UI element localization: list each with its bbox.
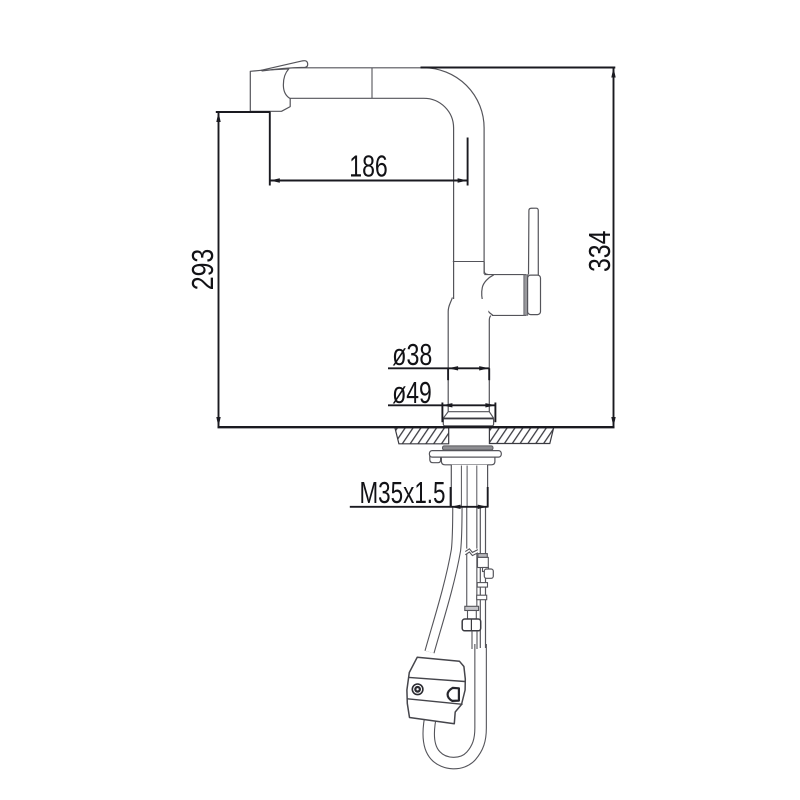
- svg-text:ø49: ø49: [392, 375, 432, 410]
- svg-text:334: 334: [582, 231, 617, 272]
- svg-text:ø38: ø38: [392, 337, 432, 372]
- svg-text:M35x1.5: M35x1.5: [360, 475, 446, 510]
- svg-text:186: 186: [349, 148, 388, 183]
- svg-text:293: 293: [185, 249, 220, 291]
